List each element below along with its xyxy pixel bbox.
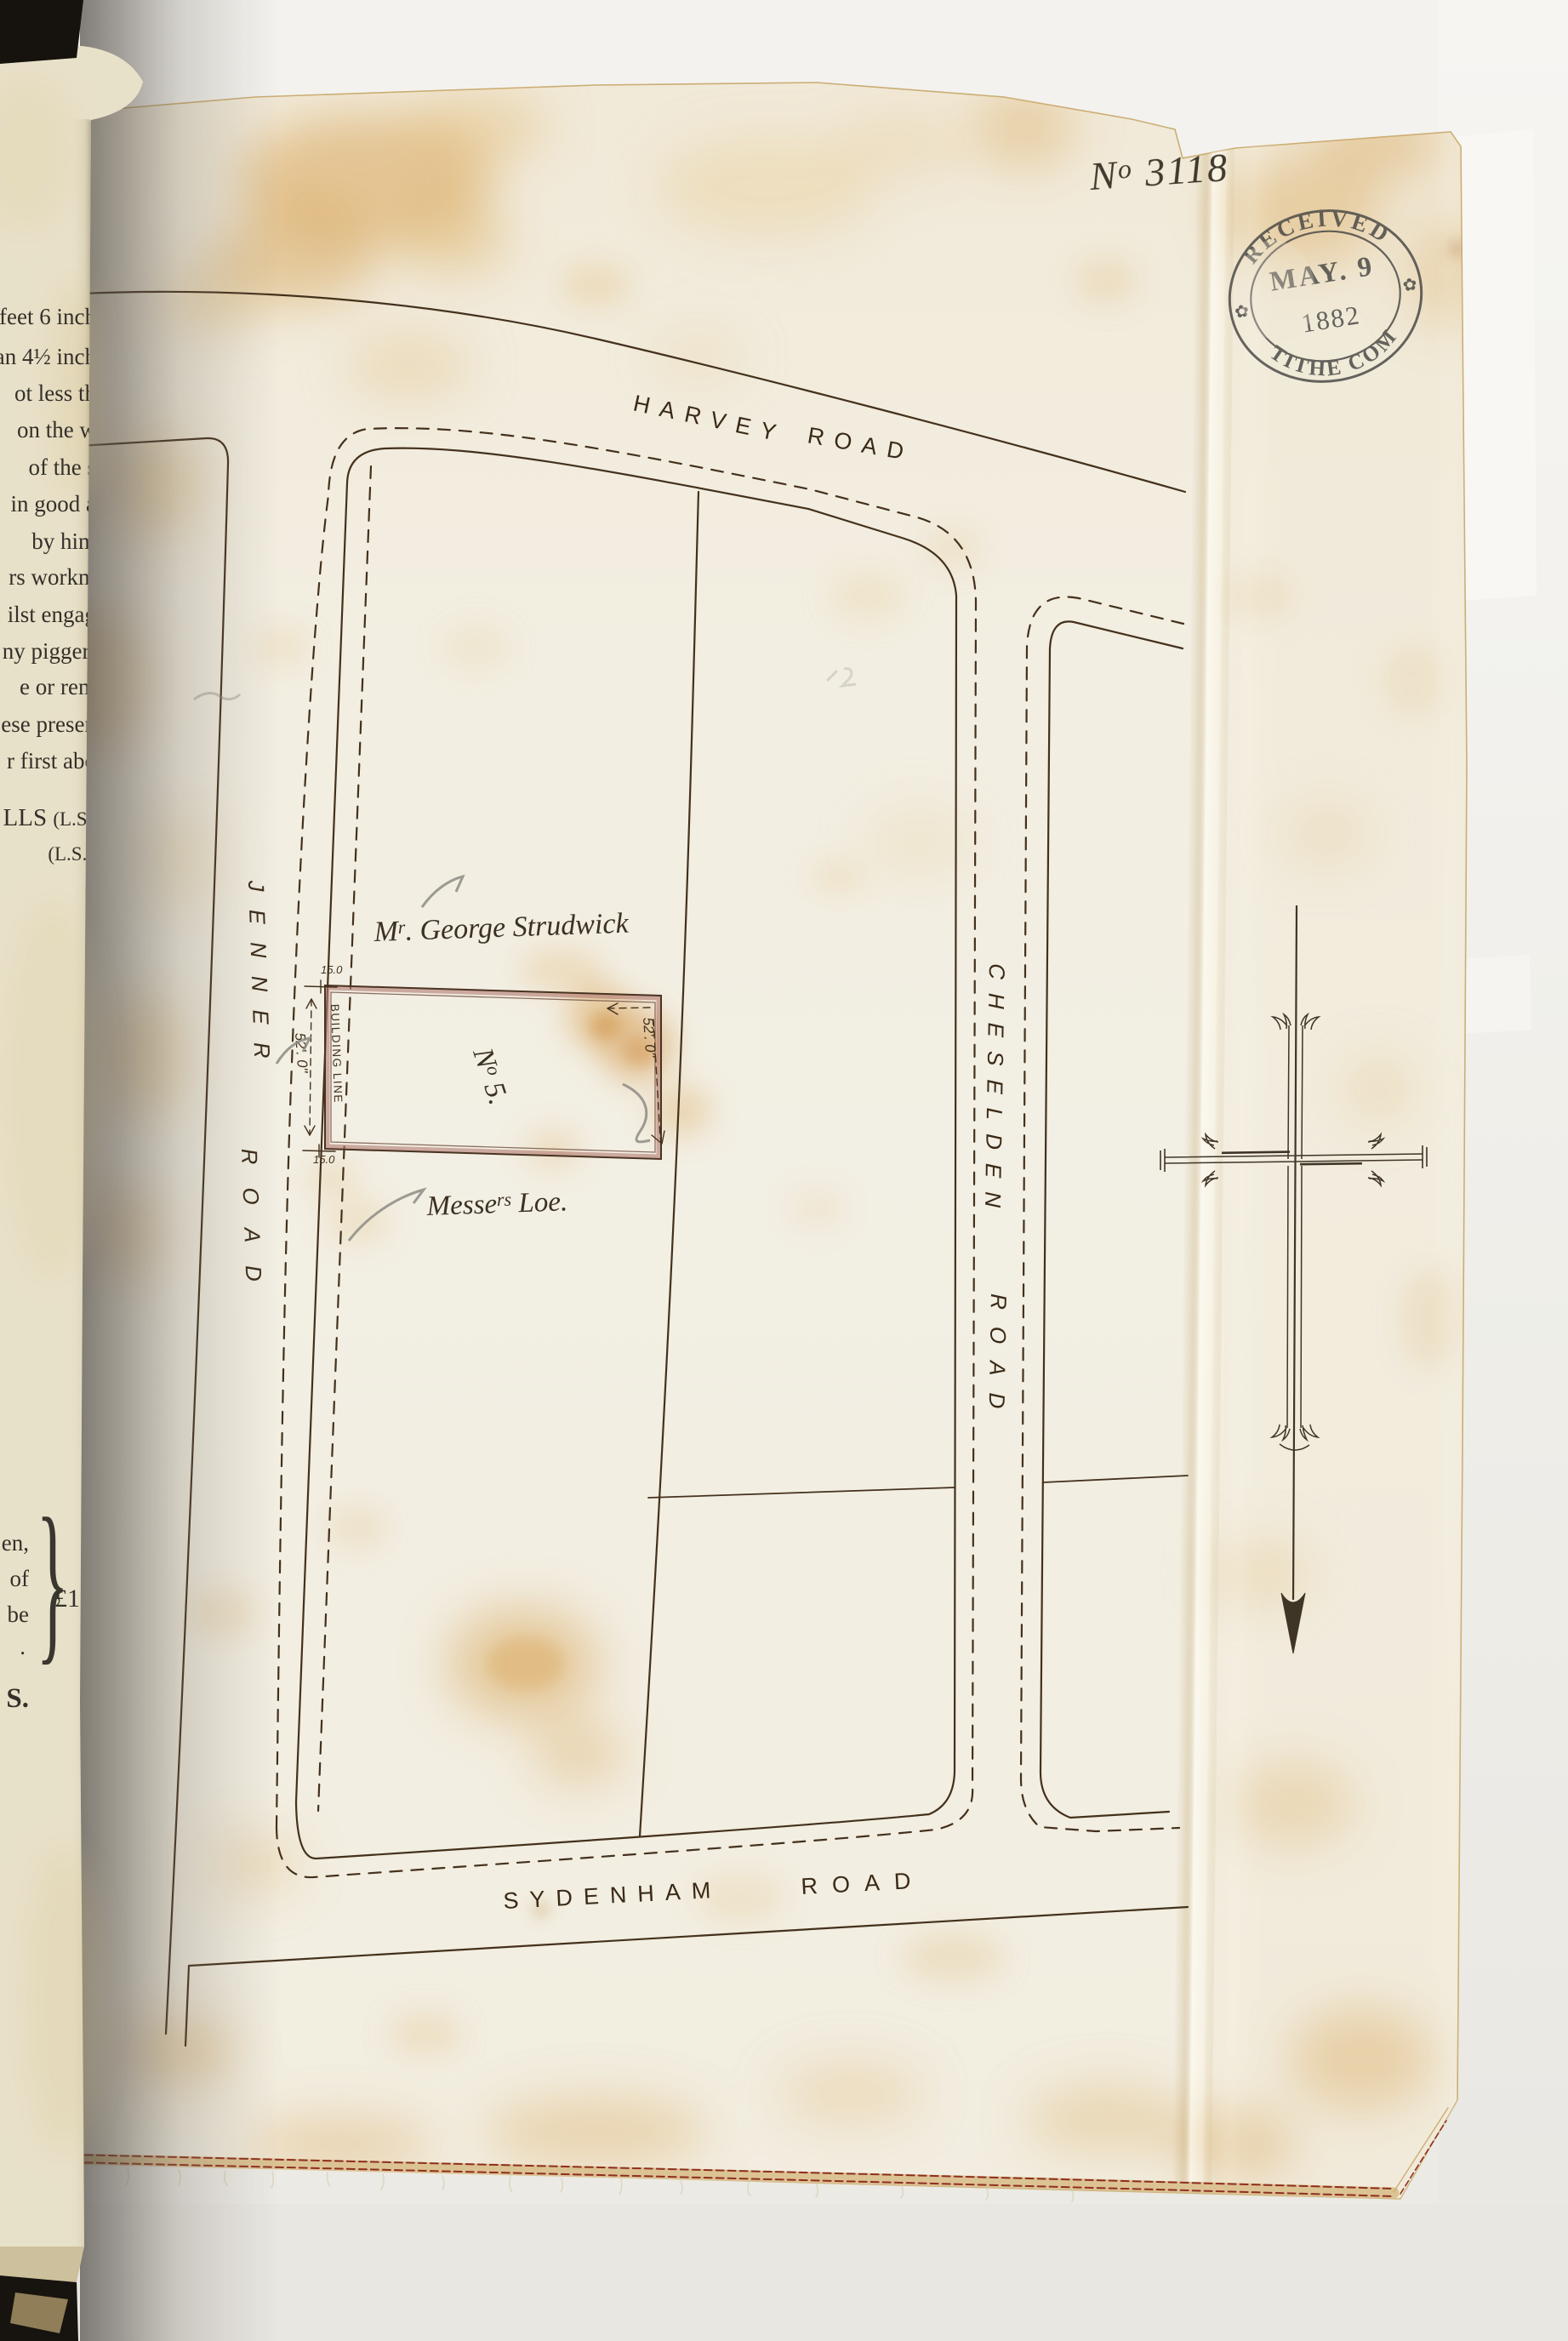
svg-text:✿: ✿ (1401, 275, 1418, 295)
svg-text:ot less th: ot less th (14, 380, 97, 406)
svg-text:CHESELDEN: CHESELDEN (980, 963, 1010, 1221)
svg-text:an 4½ inch: an 4½ inch (0, 344, 96, 369)
svg-text:by him: by him (31, 528, 96, 554)
svg-text:Messers Loe.: Messers Loe. (425, 1186, 568, 1222)
svg-text:ny piggeri: ny piggeri (3, 638, 96, 664)
svg-text:in good a: in good a (11, 491, 97, 517)
svg-text:ese presen: ese presen (1, 711, 96, 737)
svg-text:of the s: of the s (29, 454, 96, 480)
svg-text:15.0: 15.0 (321, 963, 343, 976)
svg-text:52'. 0": 52'. 0" (640, 1017, 659, 1059)
svg-text:15.0: 15.0 (313, 1153, 335, 1166)
svg-text:r first abo: r first abo (7, 748, 96, 774)
svg-text:be: be (8, 1602, 30, 1627)
svg-text:LLS (L.S.): LLS (L.S.) (3, 804, 99, 831)
svg-text:ROAD: ROAD (984, 1293, 1012, 1426)
svg-text:rs workm: rs workm (9, 564, 96, 590)
svg-text:feet 6 inch: feet 6 inch (0, 304, 96, 329)
svg-text:ilst engag: ilst engag (8, 602, 96, 627)
svg-text:en,: en, (2, 1530, 29, 1556)
svg-text:}: } (37, 1482, 69, 1681)
svg-text:S.: S. (6, 1683, 29, 1714)
svg-text:on the w: on the w (17, 417, 96, 443)
svg-text:e or rem: e or rem (20, 674, 96, 699)
svg-text:of: of (10, 1566, 30, 1591)
svg-text:.: . (20, 1634, 26, 1659)
